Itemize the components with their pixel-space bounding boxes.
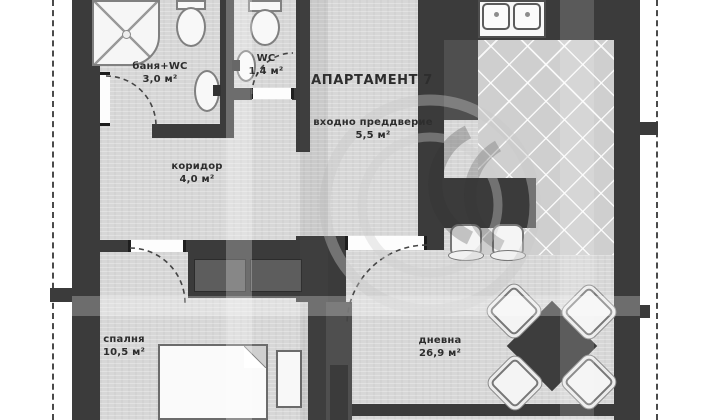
vestibule-name: входно преддверие [313, 117, 432, 128]
right-wall-jamb-top [614, 122, 658, 135]
bath-toilet-bowl [176, 7, 206, 47]
living-bottom-wall [346, 404, 614, 416]
living-door-threshold [345, 236, 427, 250]
wc-washbasin-faucet [232, 60, 240, 71]
bath-washbasin-faucet [213, 85, 221, 96]
wc-name: WC [257, 53, 276, 64]
wc-label: WC 1,4 м² [240, 52, 292, 78]
vestibule-label: входно преддверие 5,5 м² [310, 116, 436, 142]
balcony-boundary-left [52, 0, 54, 420]
wc-door-leaf [250, 88, 294, 99]
living-label: дневна 26,9 м² [398, 334, 482, 360]
kitchen-bar-counter [444, 178, 536, 228]
bar-stool-left [450, 224, 482, 258]
bed-blanket-fold [244, 346, 266, 368]
living-name: дневна [419, 335, 462, 346]
wc-toilet-bowl [250, 9, 280, 46]
wc-area: 1,4 м² [249, 66, 284, 77]
bathroom-label: баня+WC 3,0 м² [118, 60, 202, 86]
bedroom-area: 10,5 м² [103, 347, 145, 358]
corridor-area: 4,0 м² [180, 174, 215, 185]
bathroom-door-leaf [100, 72, 110, 126]
corridor-label: коридор 4,0 м² [154, 160, 240, 186]
tv-cabinet-inner [330, 365, 348, 420]
bedroom-name: спалня [103, 334, 144, 345]
bathroom-area: 3,0 м² [143, 74, 178, 85]
corridor-name: коридор [171, 161, 222, 172]
floor-plan: АПАРТАМЕНТ 7 баня+WC 3,0 м² WC 1,4 м² вх… [0, 0, 705, 420]
bathroom-name: баня+WC [132, 61, 187, 72]
shower-drain [122, 30, 131, 39]
kitchen-faucet-right [525, 12, 530, 17]
kitchen-faucet-left [494, 12, 499, 17]
bedroom-top-wall [186, 240, 308, 252]
nightstand [276, 350, 302, 408]
wc-bottom-wall-right [292, 88, 310, 100]
vestibule-area: 5,5 м² [356, 130, 391, 141]
balcony-boundary-right [656, 0, 658, 420]
bedroom-door-threshold [128, 240, 186, 252]
bath-bottom-wall [152, 124, 234, 138]
bar-stool-right [492, 224, 524, 258]
living-area: 26,9 м² [419, 348, 461, 359]
bedroom-top-wall-west [100, 240, 130, 252]
wardrobe-panel-right [250, 259, 302, 292]
left-wall-jamb [50, 288, 74, 302]
apartment-title: АПАРТАМЕНТ 7 [305, 73, 439, 88]
right-outer-wall [614, 0, 640, 420]
wardrobe-panel-left [194, 259, 246, 292]
bedroom-label: спалня 10,5 м² [82, 333, 166, 359]
right-wall-jamb-bottom [614, 305, 650, 318]
bedroom-living-divider-wall [308, 302, 326, 420]
